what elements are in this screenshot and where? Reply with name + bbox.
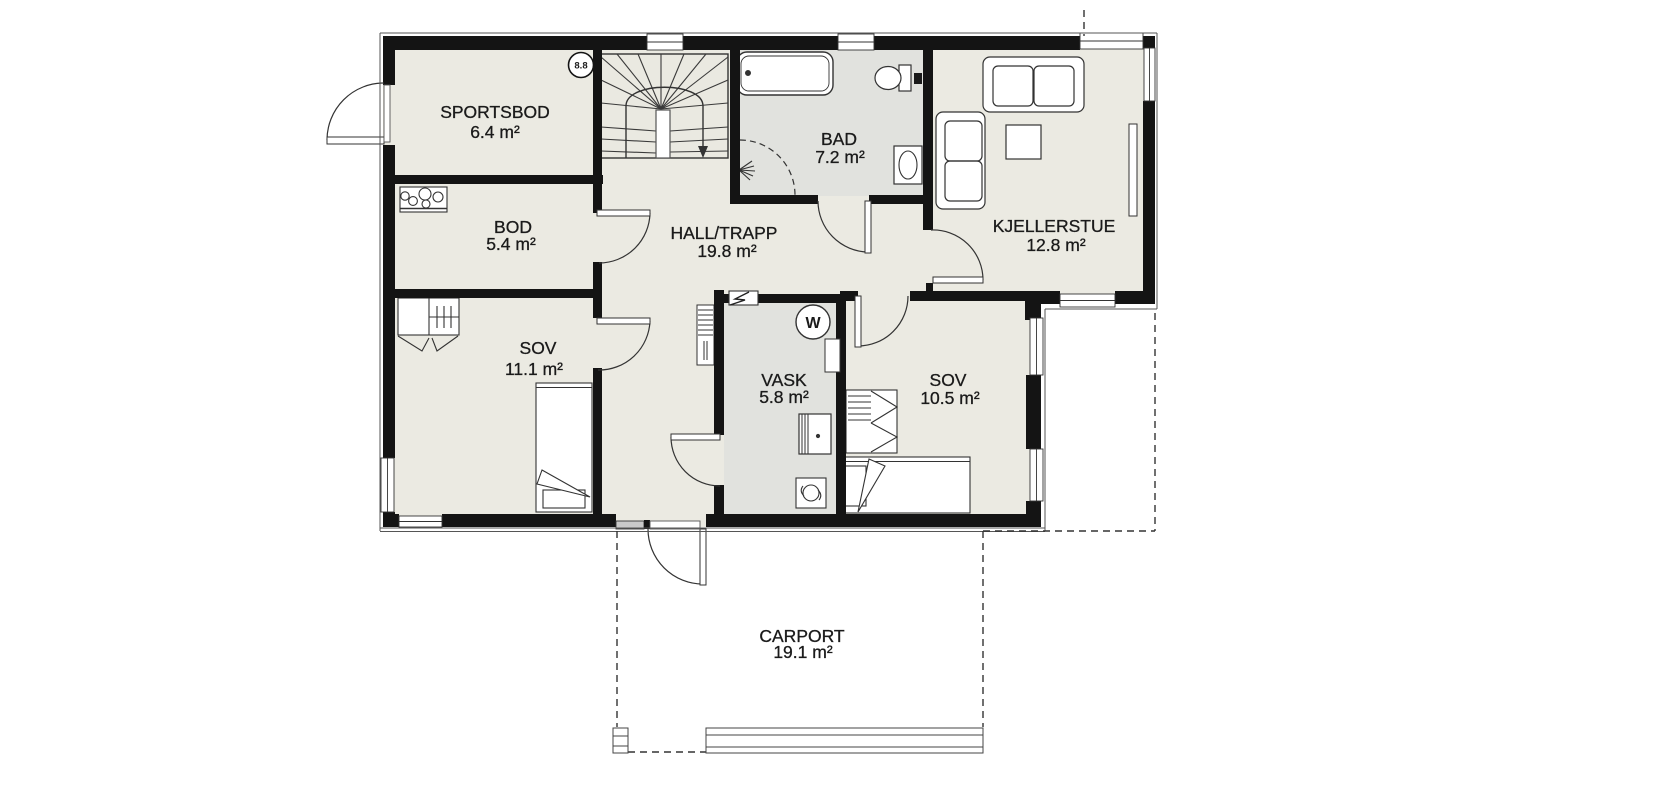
svg-text:10.5 m²: 10.5 m² (920, 388, 979, 408)
svg-text:19.8 m²: 19.8 m² (697, 241, 756, 261)
svg-text:6.4 m²: 6.4 m² (470, 122, 520, 142)
svg-text:8.8: 8.8 (574, 61, 587, 72)
svg-text:KJELLERSTUE: KJELLERSTUE (993, 216, 1116, 236)
svg-text:5.8 m²: 5.8 m² (759, 387, 809, 407)
svg-text:7.2 m²: 7.2 m² (815, 147, 865, 167)
svg-text:19.1 m²: 19.1 m² (773, 642, 832, 662)
svg-text:HALL/TRAPP: HALL/TRAPP (671, 223, 778, 243)
svg-text:12.8 m²: 12.8 m² (1026, 235, 1085, 255)
svg-text:W: W (805, 315, 821, 332)
svg-text:SOV: SOV (520, 338, 557, 358)
svg-text:SPORTSBOD: SPORTSBOD (440, 102, 550, 122)
svg-text:SOV: SOV (930, 370, 967, 390)
svg-text:BAD: BAD (821, 129, 857, 149)
svg-text:5.4 m²: 5.4 m² (486, 234, 536, 254)
svg-text:11.1 m²: 11.1 m² (505, 359, 563, 379)
